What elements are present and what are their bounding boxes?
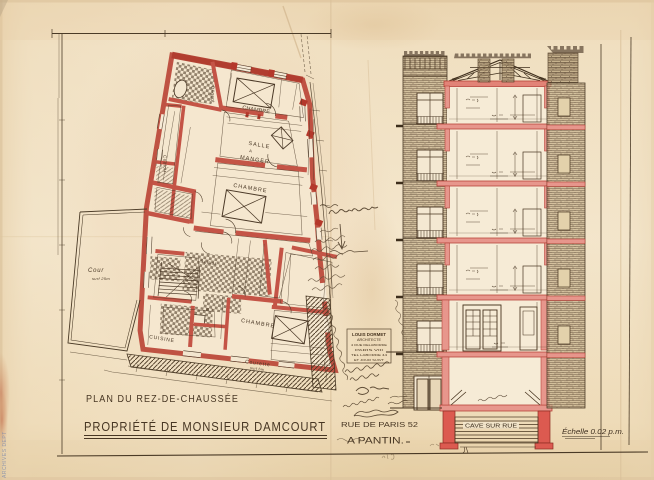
svg-text:PARIS VIII: PARIS VIII (355, 348, 383, 352)
svg-text:ARCHITECTE: ARCHITECTE (357, 338, 381, 342)
svg-text:PROPRIÉTÉ DE MONSIEUR DAMCOURT: PROPRIÉTÉ DE MONSIEUR DAMCOURT (84, 419, 326, 434)
svg-text:ET JOUR SUIVT: ET JOUR SUIVT (354, 358, 384, 362)
svg-text:ARCHIVES DEPT: ARCHIVES DEPT (2, 431, 8, 478)
svg-text:4 RUE DELABORDE: 4 RUE DELABORDE (351, 343, 387, 347)
svg-text:Dégagt: Dégagt (210, 86, 215, 103)
svg-text:TEL LABORDE 44: TEL LABORDE 44 (351, 353, 387, 357)
svg-text:RUE DE PARIS 52: RUE DE PARIS 52 (341, 420, 418, 429)
svg-text:A PANTIN.: A PANTIN. (347, 436, 404, 446)
svg-text:Échelle 0.02 p.m.: Échelle 0.02 p.m. (562, 427, 624, 436)
svg-text:LOUIS DORMET: LOUIS DORMET (352, 332, 386, 337)
svg-text:CAVE SUR RUE: CAVE SUR RUE (465, 424, 518, 430)
svg-text:PLAN DU REZ-DE-CHAUSSÉE: PLAN DU REZ-DE-CHAUSSÉE (86, 392, 239, 405)
svg-text:Cour: Cour (88, 268, 104, 274)
svg-text:surf 25m: surf 25m (92, 276, 110, 281)
